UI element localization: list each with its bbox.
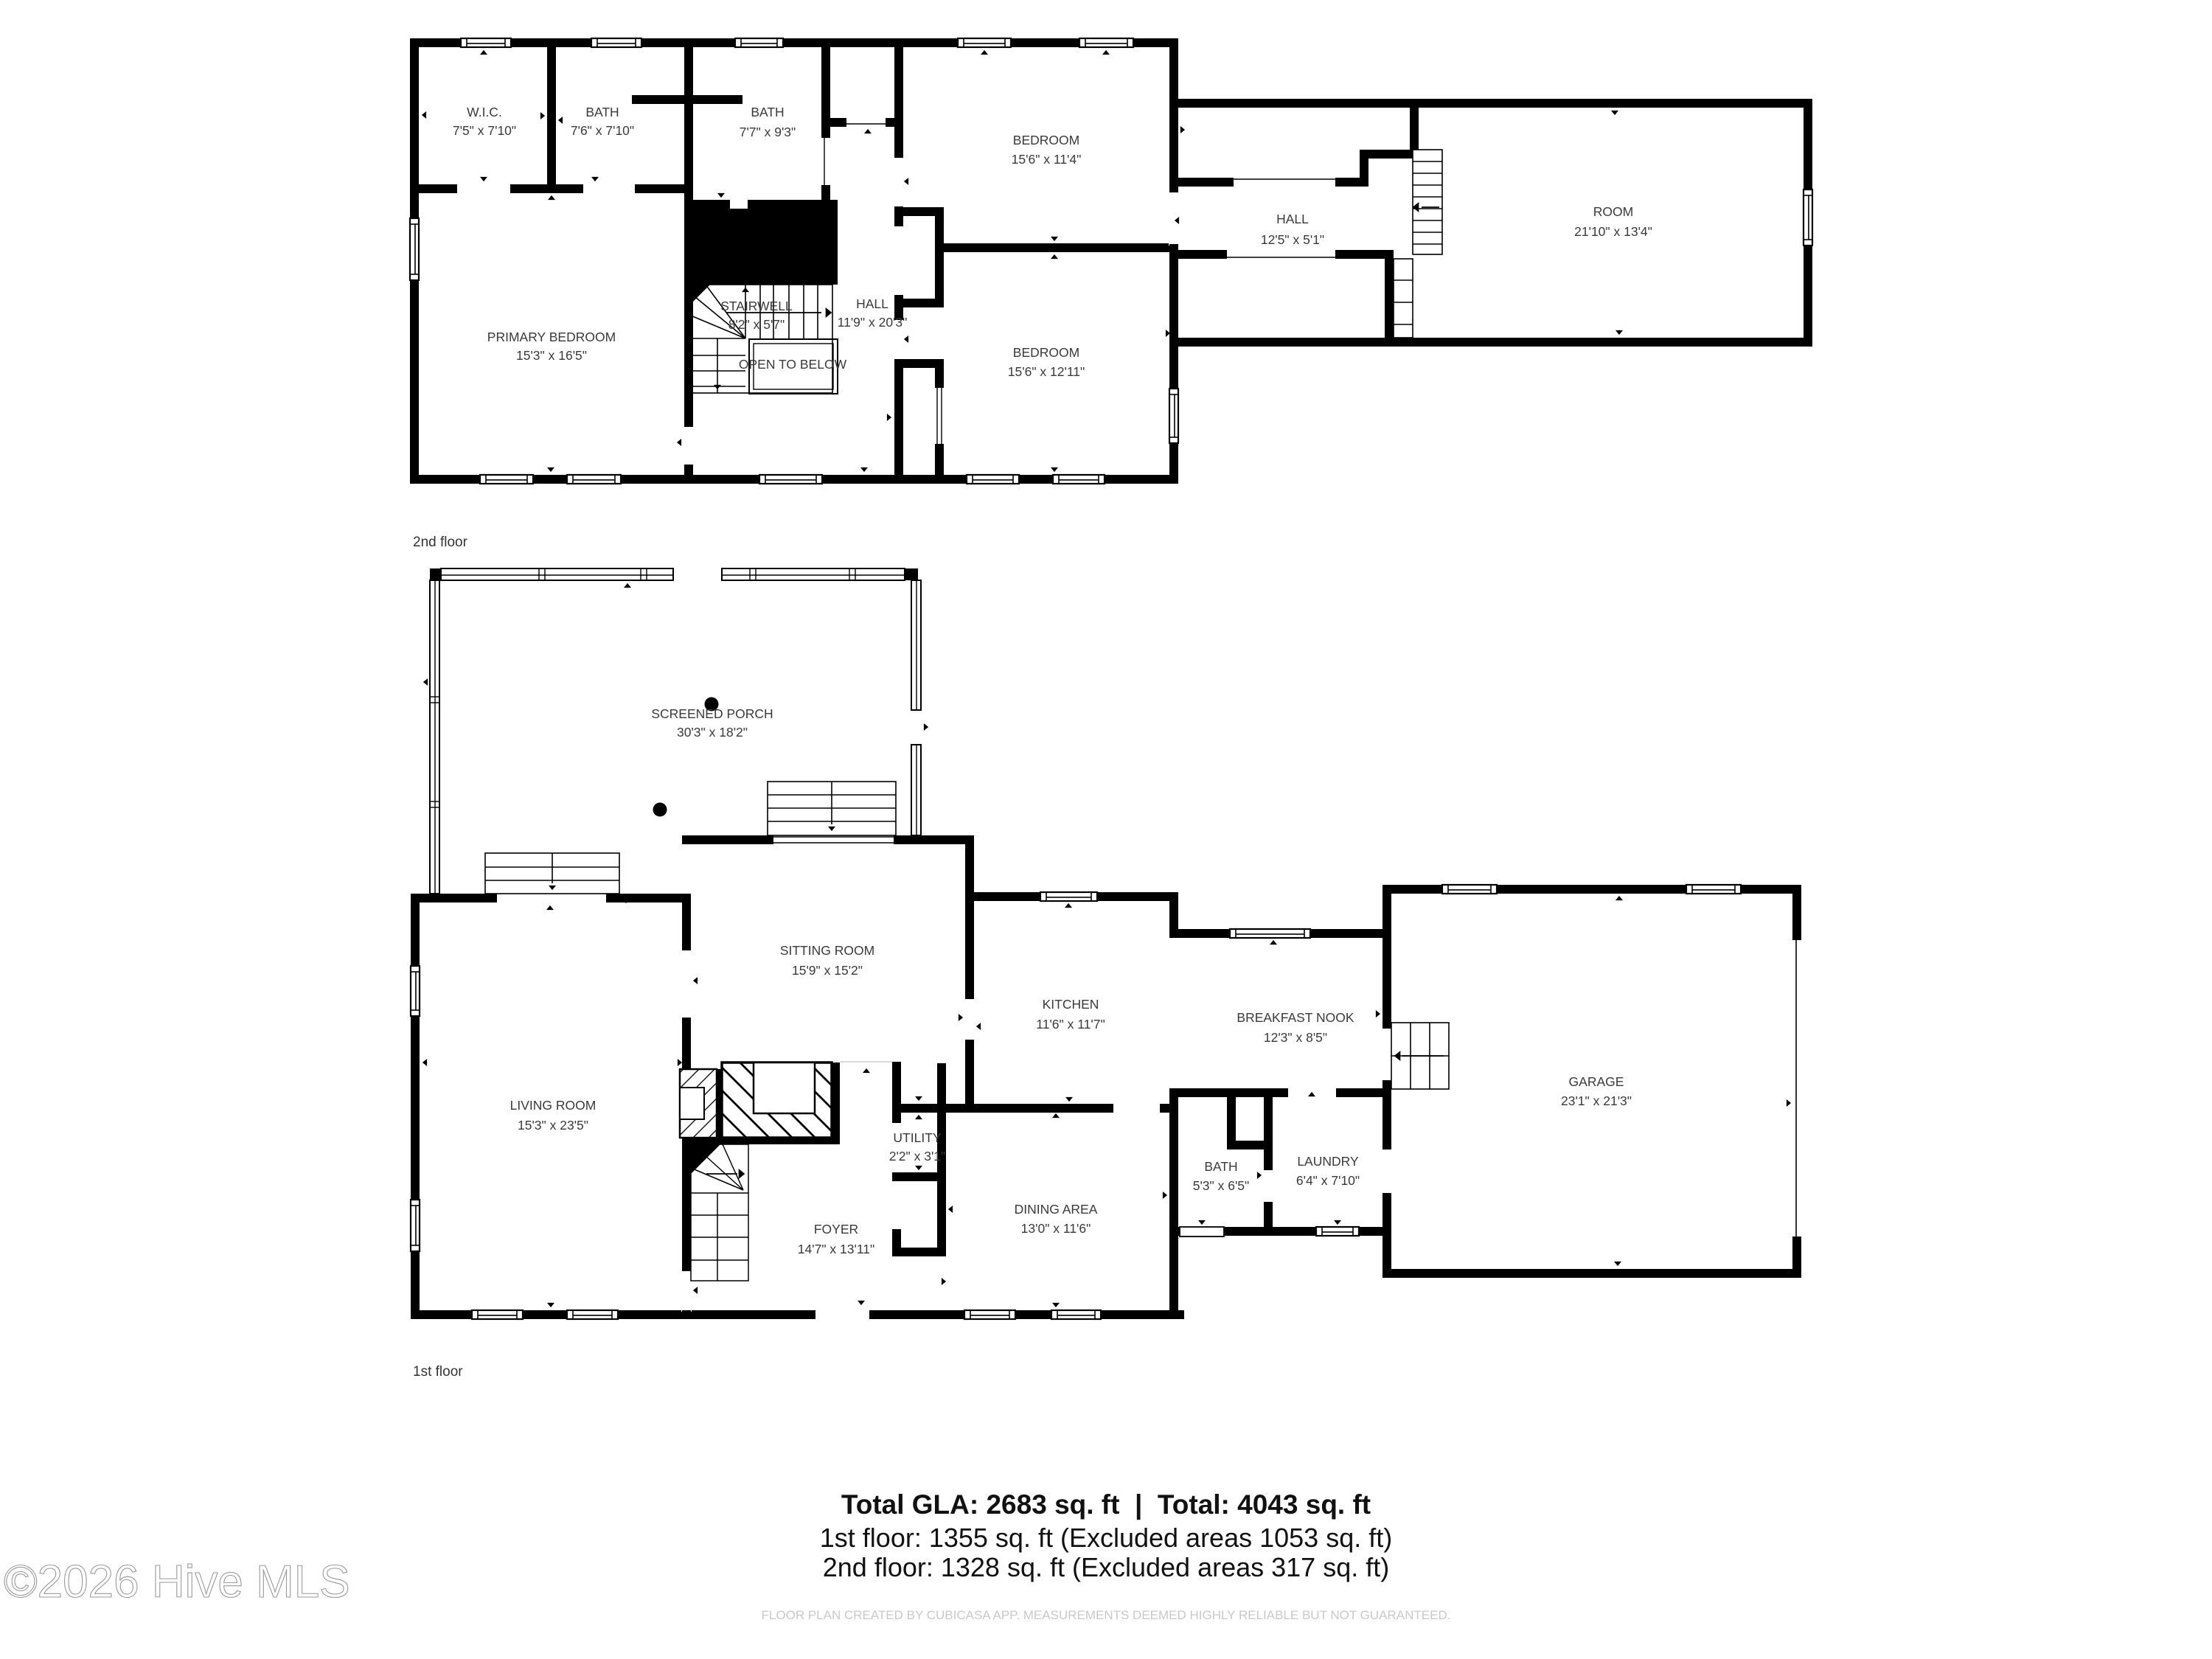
svg-text:BEDROOM: BEDROOM	[1013, 133, 1079, 147]
svg-text:UTILITY: UTILITY	[893, 1130, 941, 1145]
svg-text:14'7" x 13'11": 14'7" x 13'11"	[798, 1242, 874, 1256]
svg-text:2'2" x 3'1": 2'2" x 3'1"	[889, 1149, 946, 1164]
svg-text:STAIRWELL: STAIRWELL	[720, 299, 793, 313]
svg-text:2nd floor: 2nd floor	[413, 535, 468, 550]
svg-text:2nd floor: 1328 sq. ft (Exclud: 2nd floor: 1328 sq. ft (Excluded areas 3…	[823, 1552, 1389, 1582]
svg-text:©2026 Hive MLS: ©2026 Hive MLS	[4, 1557, 350, 1607]
svg-text:5'3" x 6'5": 5'3" x 6'5"	[1193, 1178, 1250, 1193]
svg-text:DINING AREA: DINING AREA	[1015, 1202, 1098, 1217]
svg-text:12'5" x 5'1": 12'5" x 5'1"	[1261, 232, 1324, 247]
svg-text:FLOOR PLAN CREATED BY CUBICASA: FLOOR PLAN CREATED BY CUBICASA APP. MEAS…	[762, 1608, 1451, 1622]
svg-text:KITCHEN: KITCHEN	[1043, 997, 1099, 1012]
svg-text:HALL: HALL	[1276, 212, 1309, 226]
svg-text:7'5" x 7'10": 7'5" x 7'10"	[453, 123, 516, 138]
svg-text:11'6" x 11'7": 11'6" x 11'7"	[1036, 1017, 1105, 1032]
svg-text:Total GLA: 2683 sq. ft | Tot: Total GLA: 2683 sq. ft | Total: 4043 sq.…	[841, 1489, 1371, 1520]
svg-text:SCREENED PORCH: SCREENED PORCH	[651, 706, 773, 721]
svg-text:15'9" x 15'2": 15'9" x 15'2"	[792, 963, 863, 978]
svg-text:21'10" x 13'4": 21'10" x 13'4"	[1574, 224, 1652, 239]
svg-text:FOYER: FOYER	[814, 1222, 858, 1237]
svg-text:GARAGE: GARAGE	[1569, 1074, 1624, 1089]
svg-text:BATH: BATH	[751, 105, 784, 119]
svg-text:BREAKFAST NOOK: BREAKFAST NOOK	[1237, 1010, 1354, 1025]
svg-text:15'3" x 23'5": 15'3" x 23'5"	[518, 1118, 588, 1133]
svg-text:11'9" x 20'3": 11'9" x 20'3"	[838, 315, 908, 330]
svg-text:HALL: HALL	[856, 296, 888, 311]
svg-text:LIVING ROOM: LIVING ROOM	[510, 1098, 597, 1113]
svg-text:LAUNDRY: LAUNDRY	[1297, 1154, 1359, 1169]
svg-text:7'6" x 7'10": 7'6" x 7'10"	[571, 123, 634, 138]
svg-text:PRIMARY BEDROOM: PRIMARY BEDROOM	[487, 330, 616, 344]
svg-text:15'3" x 16'5": 15'3" x 16'5"	[516, 348, 587, 363]
svg-text:1st floor: 1st floor	[413, 1364, 463, 1380]
svg-text:30'3" x 18'2": 30'3" x 18'2"	[677, 725, 748, 740]
svg-text:13'0" x 11'6": 13'0" x 11'6"	[1021, 1221, 1091, 1236]
svg-text:SITTING ROOM: SITTING ROOM	[780, 943, 874, 958]
svg-text:15'6" x 11'4": 15'6" x 11'4"	[1012, 152, 1082, 167]
svg-text:1st floor: 1355 sq. ft (Exclud: 1st floor: 1355 sq. ft (Excluded areas 1…	[820, 1523, 1392, 1553]
svg-text:23'1" x 21'3": 23'1" x 21'3"	[1561, 1093, 1632, 1108]
svg-text:W.I.C.: W.I.C.	[467, 105, 502, 119]
svg-text:6'4" x 7'10": 6'4" x 7'10"	[1296, 1173, 1360, 1188]
svg-text:15'6" x 12'11": 15'6" x 12'11"	[1008, 364, 1085, 379]
svg-text:BEDROOM: BEDROOM	[1013, 345, 1079, 360]
svg-text:ROOM: ROOM	[1593, 204, 1633, 219]
svg-text:12'3" x 8'5": 12'3" x 8'5"	[1264, 1030, 1327, 1045]
svg-text:7'7" x 9'3": 7'7" x 9'3"	[740, 125, 796, 139]
svg-text:OPEN TO BELOW: OPEN TO BELOW	[739, 357, 847, 372]
svg-text:BATH: BATH	[585, 105, 619, 119]
svg-text:BATH: BATH	[1204, 1159, 1237, 1174]
svg-text:8'2" x 5'7": 8'2" x 5'7"	[728, 317, 785, 332]
